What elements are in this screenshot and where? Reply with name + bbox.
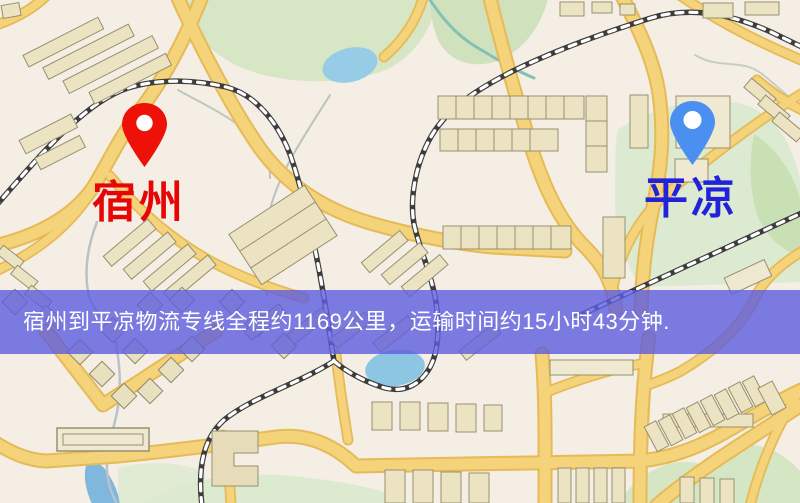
origin-pin-hole	[136, 115, 152, 131]
origin-city-label: 宿州	[92, 181, 186, 225]
route-info-banner: 宿州到平凉物流专线全程约1169公里，运输时间约15小时43分钟.	[0, 290, 800, 354]
route-info-text: 宿州到平凉物流专线全程约1169公里，运输时间约15小时43分钟.	[23, 311, 670, 333]
destination-pin-icon	[669, 100, 716, 166]
destination-city-label: 平凉	[644, 177, 738, 221]
map-canvas	[0, 0, 800, 503]
map-screenshot: 宿州 平凉 宿州到平凉物流专线全程约1169公里，运输时间约15小时43分钟.	[0, 0, 800, 503]
destination-pin-body	[670, 101, 715, 165]
destination-pin-hole	[684, 111, 702, 129]
origin-pin-body	[122, 103, 167, 167]
origin-pin-icon	[121, 102, 168, 168]
